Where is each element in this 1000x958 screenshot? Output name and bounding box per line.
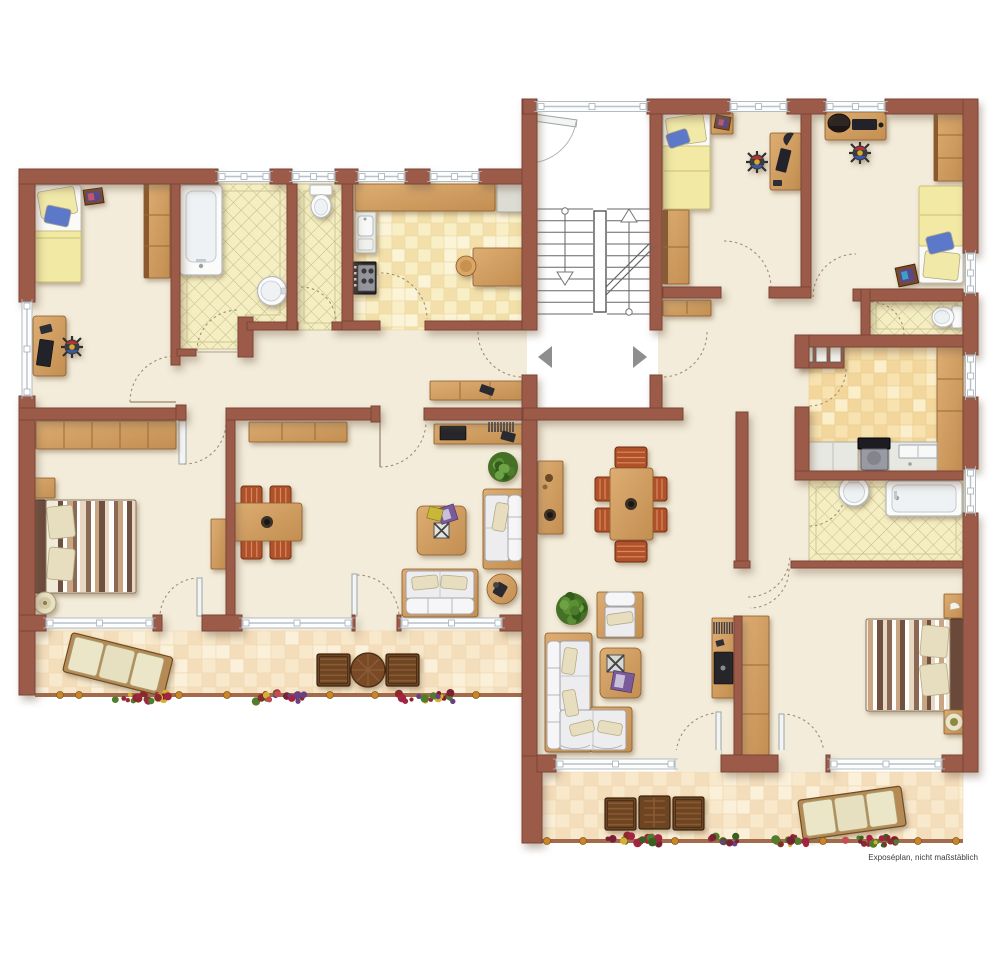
svg-text:Exposéplan, nicht maßstäblich: Exposéplan, nicht maßstäblich: [868, 853, 978, 862]
